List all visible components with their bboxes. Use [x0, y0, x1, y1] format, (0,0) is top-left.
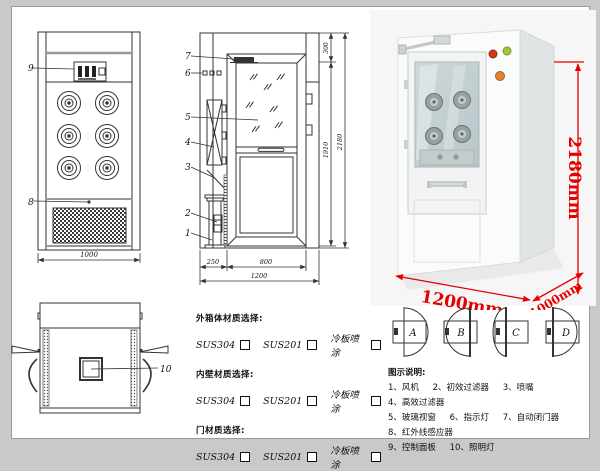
fan-box-drawing — [207, 100, 226, 165]
door-option-b[interactable]: B — [441, 300, 481, 364]
option-label-sus304: SUS304 — [196, 452, 235, 463]
material-options-door: SUS304 SUS201 冷板喷涂 — [196, 443, 381, 471]
option-label-sus201: SUS201 — [263, 340, 302, 351]
checkbox-inner-sus201[interactable] — [307, 396, 317, 406]
door-hinges-side — [306, 94, 312, 135]
option-label-coated: 冷板喷涂 — [330, 443, 366, 471]
side-dims-right — [319, 33, 349, 248]
legend-item-primary-filter: 2、初效过滤器 — [433, 381, 489, 396]
legend-item-control-panel: 9、控制面板 — [388, 441, 436, 456]
label-3: 3 — [185, 163, 191, 173]
checkbox-door-sus304[interactable] — [240, 452, 250, 462]
legend-item-lighting: 10、照明灯 — [450, 441, 495, 456]
side-part-labels: 7 6 5 4 3 2 1 — [184, 52, 191, 239]
legend-item-glass-window: 5、玻璃视窗 — [388, 411, 436, 426]
hinge-photo — [404, 80, 408, 89]
indicator-light-red — [489, 50, 497, 58]
option-label-sus201: SUS201 — [263, 452, 302, 463]
side-unit-outline — [200, 33, 319, 248]
legend-line-3: 9、控制面板 10、照明灯 — [388, 441, 588, 456]
door-option-letter-d: D — [561, 328, 570, 339]
label-4: 4 — [184, 138, 191, 148]
checkbox-body-sus304[interactable] — [240, 340, 250, 350]
emergency-button — [496, 72, 505, 81]
door-option-letter-a: A — [408, 328, 416, 339]
interior-knob-2 — [454, 155, 459, 160]
legend-line-1: 1、风机 2、初效过滤器 3、喷嘴 4、高效过滤器 — [388, 381, 588, 411]
door-swing-left — [12, 346, 41, 392]
duct-diagonal — [207, 170, 226, 190]
material-options-inner: SUS304 SUS201 冷板喷涂 — [196, 387, 381, 415]
photo-dim-height: 2180mm — [564, 136, 584, 219]
door-seal-strip — [224, 175, 227, 245]
dim-300: 300 — [323, 42, 330, 54]
material-options-body: SUS304 SUS201 冷板喷涂 — [196, 331, 381, 359]
option-label-coated: 冷板喷涂 — [330, 387, 366, 415]
door-option-c[interactable]: C — [492, 300, 532, 364]
legend-item-door-closer: 7、自动闭门器 — [503, 411, 559, 426]
label-1: 1 — [185, 229, 191, 239]
interior-panel — [420, 150, 474, 165]
front-label-grille: 8 — [28, 198, 34, 208]
dim-250: 250 — [206, 258, 219, 266]
leader-dot — [87, 200, 90, 203]
label-6: 6 — [185, 69, 191, 79]
legend-item-indicator-light: 6、指示灯 — [450, 411, 489, 426]
option-label-sus304: SUS304 — [196, 396, 235, 407]
checkbox-body-coated[interactable] — [371, 340, 381, 350]
legend-item-hepa-filter: 4、高效过滤器 — [388, 396, 444, 411]
front-label-control-panel: 9 — [28, 64, 34, 74]
leader-line-9 — [33, 68, 74, 69]
door-outline — [227, 54, 306, 246]
checkbox-door-sus201[interactable] — [307, 452, 317, 462]
spec-sheet-page: { "colors": { "line": "#333333", "dim_re… — [0, 0, 600, 450]
cabinet-3d — [398, 30, 564, 290]
leader-line-8 — [33, 201, 89, 202]
top-view-drawing: 10 — [10, 293, 190, 428]
indicator-light-green — [503, 47, 511, 55]
dim-800: 800 — [260, 258, 272, 266]
material-section-title-body: 外箱体材质选择: — [196, 312, 381, 324]
option-label-coated: 冷板喷涂 — [330, 331, 366, 359]
legend-block: 图示说明: 1、风机 2、初效过滤器 3、喷嘴 4、高效过滤器 5、玻璃视窗 6… — [388, 366, 588, 456]
label-7: 7 — [185, 52, 191, 62]
material-section-title-inner: 内壁材质选择: — [196, 368, 381, 380]
legend-title: 图示说明: — [388, 366, 588, 381]
door-option-d[interactable]: D — [543, 300, 583, 364]
sensor-squares — [203, 71, 221, 75]
material-selection-form: 外箱体材质选择: SUS304 SUS201 冷板喷涂 内壁材质选择: SUS3… — [196, 312, 381, 471]
cabinet-side-face — [520, 30, 554, 262]
label-5: 5 — [185, 113, 191, 123]
door-option-letter-c: C — [512, 328, 520, 339]
door-option-letter-b: B — [456, 328, 464, 339]
product-photo: 2180mm 1200mm 1000mm — [368, 10, 598, 310]
door-option-a[interactable]: A — [390, 300, 430, 364]
seal-strip-left — [43, 330, 49, 406]
option-label-sus201: SUS201 — [263, 396, 302, 407]
checkbox-body-sus201[interactable] — [307, 340, 317, 350]
nozzles-front — [58, 92, 119, 180]
dim-1000: 1000 — [80, 251, 98, 259]
interior-knob — [438, 155, 443, 160]
legend-line-2: 5、玻璃视窗 6、指示灯 7、自动闭门器 8、红外线感应器 — [388, 411, 588, 441]
control-panel-drawing — [74, 62, 106, 81]
material-section-title-door: 门材质选择: — [196, 424, 381, 436]
checkbox-inner-sus304[interactable] — [240, 396, 250, 406]
door-closer-drawing — [230, 57, 258, 63]
door-swing-options: A B C D — [390, 300, 583, 364]
dim-1910: 1910 — [322, 142, 330, 159]
dim-1200: 1200 — [251, 272, 268, 280]
front-view-drawing: 9 8 1000 — [20, 20, 190, 270]
hinge-photo-2 — [404, 140, 408, 149]
glass-hatch-marks — [246, 72, 284, 133]
side-view-drawing: 7 6 5 4 3 2 1 300 1910 2180 250 80 — [180, 20, 360, 300]
checkbox-inner-coated[interactable] — [371, 396, 381, 406]
air-return-grille — [53, 208, 126, 243]
checkbox-door-coated[interactable] — [371, 452, 381, 462]
legend-item-fan: 1、风机 — [388, 381, 419, 396]
label-10: 10 — [160, 365, 172, 375]
option-label-sus304: SUS304 — [196, 340, 235, 351]
legend-item-nozzle: 3、喷嘴 — [503, 381, 534, 396]
label-2: 2 — [184, 209, 191, 219]
dim-2180: 2180 — [336, 134, 344, 152]
legend-item-ir-sensor: 8、红外线感应器 — [388, 426, 453, 441]
